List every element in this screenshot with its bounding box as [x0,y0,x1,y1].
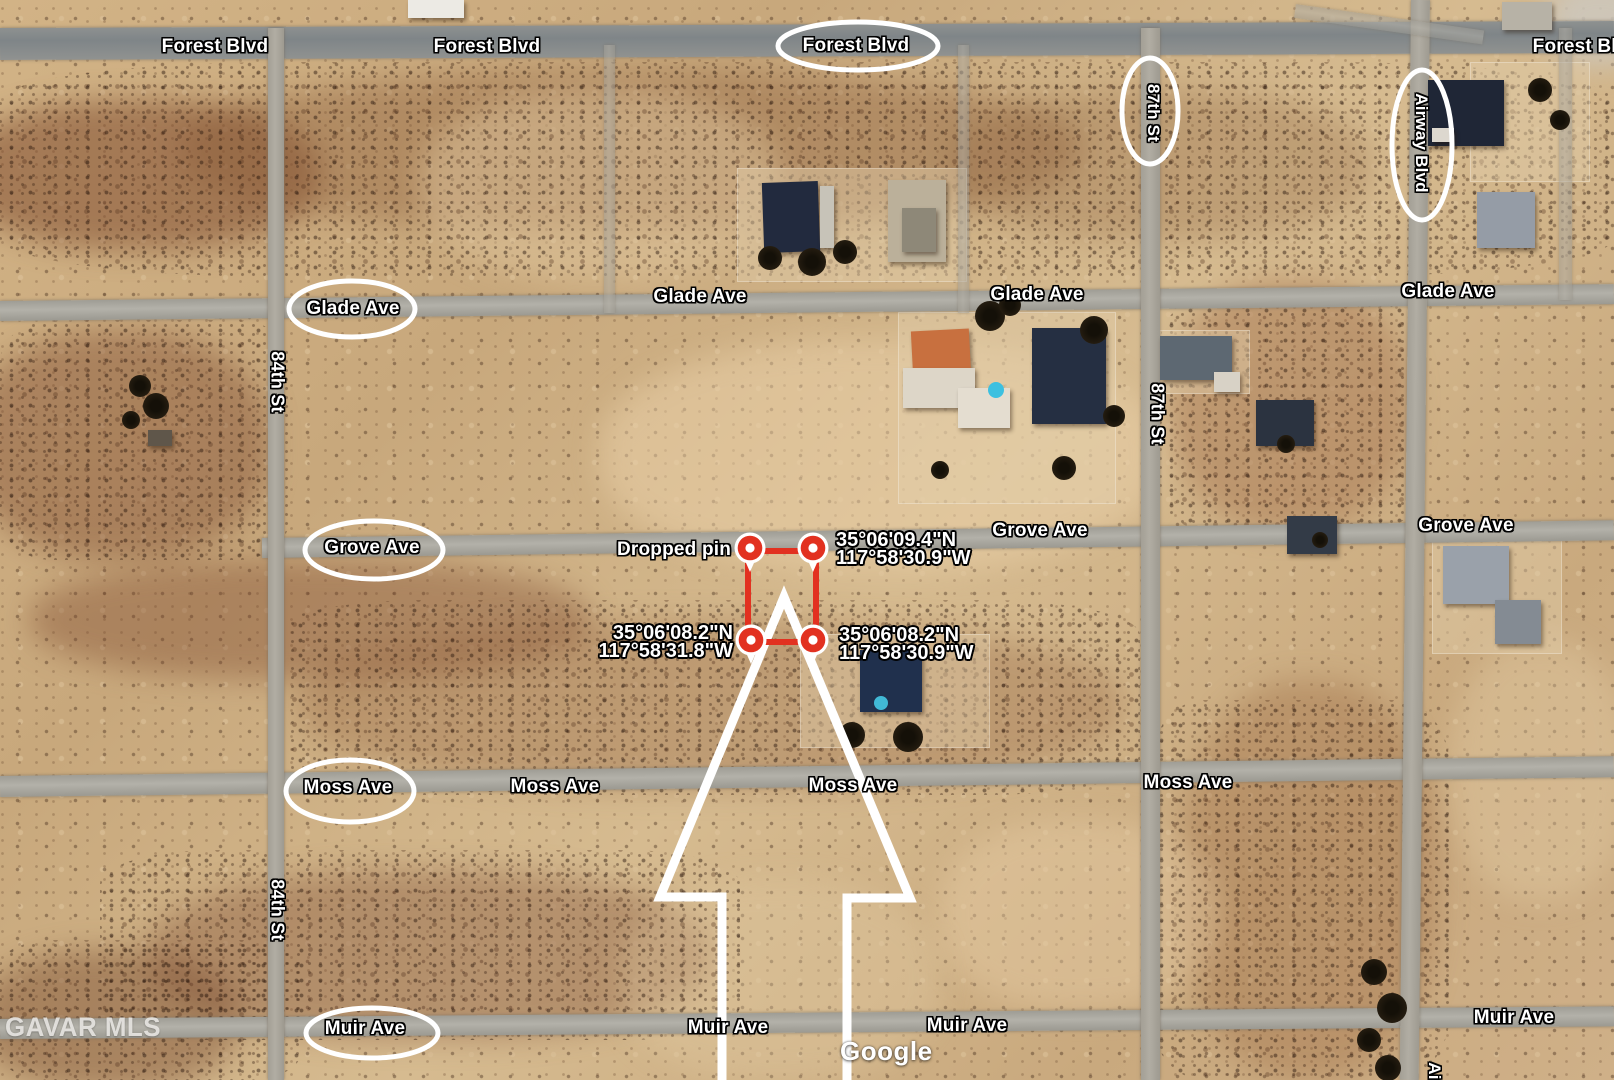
satellite-map: Forest BlvdForest BlvdForest BlvdForest … [0,0,1614,1080]
pointer-arrow [660,597,910,1080]
road-label: Airway Blvd [1424,1062,1444,1080]
road-label: Muir Ave [927,1015,1007,1037]
annotation-overlay [0,0,1614,1080]
pin-center-dot [808,543,817,552]
coordinate-label: 35°06'08.2"N117°58'30.9"W [839,626,974,662]
road-label: 87th St [1147,383,1168,444]
road-label: Grove Ave [992,520,1087,542]
road-label: Glade Ave [306,298,399,320]
road-label: Moss Ave [1144,772,1233,794]
coordinate-label: 35°06'08.2"N117°58'31.8"W [598,624,733,660]
coordinate-line: 117°58'30.9"W [839,644,974,662]
pin-center-dot [808,635,817,644]
road-label: 84th St [267,879,288,940]
coordinate-label: 35°06'09.4"N117°58'30.9"W [836,531,971,567]
road-label: Forest Blvd [162,36,269,58]
road-label: Glade Ave [1401,281,1494,303]
road-label: Moss Ave [809,775,898,797]
road-label: Grove Ave [1418,515,1513,537]
road-label: Moss Ave [304,777,393,799]
road-label: Glade Ave [990,284,1083,306]
road-label: Muir Ave [325,1018,405,1040]
road-label: Airway Blvd [1411,93,1431,193]
road-label: Forest Blvd [803,35,910,57]
road-label: Forest Blvd [1533,36,1614,58]
road-label: Dropped pin [617,539,731,561]
road-label: Moss Ave [511,776,600,798]
road-label: 84th St [267,351,288,412]
mls-watermark: GAVAR MLS [5,1012,161,1043]
coordinate-line: 117°58'30.9"W [836,549,971,567]
pin-center-dot [746,635,755,644]
road-label: Muir Ave [1474,1007,1554,1029]
pin-center-dot [745,543,754,552]
google-attribution: Google [840,1036,933,1067]
road-label: Forest Blvd [434,36,541,58]
road-label: Glade Ave [653,286,746,308]
road-label: 87th St [1143,84,1163,142]
road-label: Muir Ave [688,1017,768,1039]
road-label: Grove Ave [324,537,419,559]
coordinate-line: 117°58'31.8"W [598,642,733,660]
